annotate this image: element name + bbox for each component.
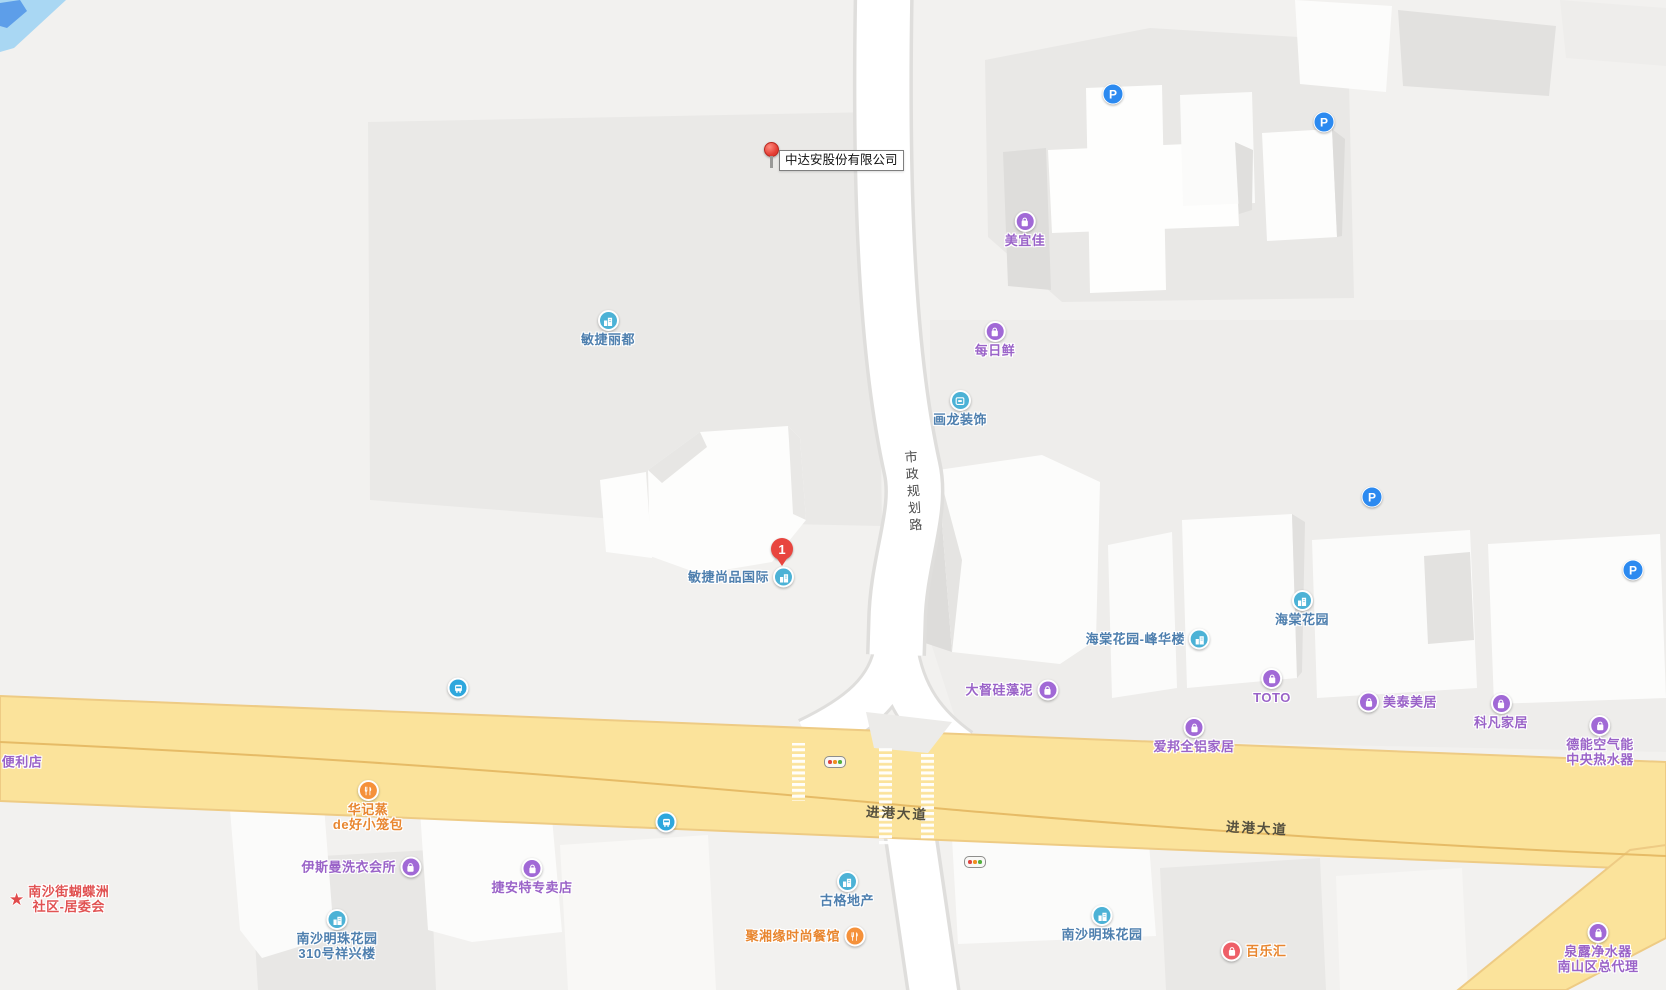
poi-kefan-jiaju[interactable]: 科凡家居 xyxy=(1474,693,1528,730)
bag-icon xyxy=(1490,693,1511,714)
sign-icon xyxy=(949,390,970,411)
bag-icon xyxy=(1183,717,1204,738)
building-icon xyxy=(326,909,347,930)
poi-label: 美泰美居 xyxy=(1383,695,1437,710)
poi-labels: 华记蒸de好小笼包 xyxy=(333,802,403,832)
parking-icon[interactable]: P xyxy=(1314,112,1335,133)
poi-labels: 画龙装饰 xyxy=(933,412,987,427)
building-icon xyxy=(836,871,857,892)
poi-labels: 泉露净水器南山区总代理 xyxy=(1557,944,1638,974)
bag-icon xyxy=(1589,715,1610,736)
poi-label: 南沙街蝴蝶洲 xyxy=(28,884,109,899)
poi-guge-dichan[interactable]: 古格地产 xyxy=(820,871,874,908)
traffic-light-icon xyxy=(824,756,846,768)
poi-juxiangyuan[interactable]: 聚湘缘时尚餐馆 xyxy=(745,926,865,947)
poi-labels: 南沙街蝴蝶洲社区-居委会 xyxy=(28,884,109,914)
poi-label: 南沙明珠花园 xyxy=(296,931,377,946)
poi-label: 南沙明珠花园 xyxy=(1061,927,1142,942)
bag-icon xyxy=(1587,922,1608,943)
bus-stop-icon[interactable] xyxy=(656,812,677,833)
poi-hualong-zhuangshi[interactable]: 画龙装饰 xyxy=(933,390,987,427)
parking-icon[interactable]: P xyxy=(1103,84,1124,105)
poi-labels: 便利店 xyxy=(2,755,43,770)
poi-labels: 捷安特专卖店 xyxy=(491,880,572,895)
pin-icon xyxy=(764,142,779,157)
poi-label: 大督硅藻泥 xyxy=(965,683,1033,698)
bus-stop-icon[interactable] xyxy=(448,678,469,699)
poi-labels: 海棠花园 xyxy=(1275,612,1329,627)
poi-labels: 科凡家居 xyxy=(1474,715,1528,730)
poi-labels: 百乐汇 xyxy=(1246,944,1287,959)
poi-labels: 美泰美居 xyxy=(1383,695,1437,710)
poi-label: 美宜佳 xyxy=(1005,233,1046,248)
traffic-light-icon xyxy=(964,856,986,868)
poi-label: 聚湘缘时尚餐馆 xyxy=(745,929,840,944)
road-label-shizheng-guihua-rd: 市政规划路 xyxy=(900,449,925,535)
poi-label: TOTO xyxy=(1253,690,1291,705)
poi-labels: 伊斯曼洗衣会所 xyxy=(301,860,396,875)
bag-icon xyxy=(1037,680,1058,701)
parking-icon[interactable]: P xyxy=(1623,560,1644,581)
poi-label: 华记蒸 xyxy=(348,802,389,817)
poi-yisiman-laundry[interactable]: 伊斯曼洗衣会所 xyxy=(301,857,421,878)
bag-icon xyxy=(400,857,421,878)
poi-quanlu-water[interactable]: 泉露净水器南山区总代理 xyxy=(1557,922,1638,974)
poi-labels: 古格地产 xyxy=(820,893,874,908)
poi-label: 敏捷尚品国际 xyxy=(688,570,769,585)
map-viewport[interactable]: 敏捷丽都美宜佳每日鲜画龙装饰敏捷尚品国际海棠花园-峰华楼海棠花园大督硅藻泥TOT… xyxy=(0,0,1666,990)
pin-stick xyxy=(770,156,773,168)
poi-meitai-meiju[interactable]: 美泰美居 xyxy=(1358,692,1437,713)
poi-label: 社区-居委会 xyxy=(33,899,105,914)
poi-toto[interactable]: TOTO xyxy=(1253,668,1291,705)
road-label-jingang-ave-west: 进港大道 xyxy=(866,800,929,823)
building-icon xyxy=(1189,629,1210,650)
poi-meirixian[interactable]: 每日鲜 xyxy=(975,321,1016,358)
poi-minjie-lidu[interactable]: 敏捷丽都 xyxy=(581,310,635,347)
building-icon xyxy=(597,310,618,331)
poi-labels: 敏捷丽都 xyxy=(581,332,635,347)
poi-jieante[interactable]: 捷安特专卖店 xyxy=(491,858,572,895)
poi-deneng[interactable]: 德能空气能中央热水器 xyxy=(1566,715,1634,767)
numbered-marker[interactable]: 1 xyxy=(771,538,793,560)
bag-icon xyxy=(1014,211,1035,232)
bag-icon xyxy=(1261,668,1282,689)
poi-layer: 敏捷丽都美宜佳每日鲜画龙装饰敏捷尚品国际海棠花园-峰华楼海棠花园大督硅藻泥TOT… xyxy=(0,0,1666,990)
poi-label: 捷安特专卖店 xyxy=(491,880,572,895)
poi-nansha-mingzhu[interactable]: 南沙明珠花园 xyxy=(1061,905,1142,942)
poi-labels: TOTO xyxy=(1253,690,1291,705)
poi-label: 每日鲜 xyxy=(975,343,1016,358)
poi-label: 南山区总代理 xyxy=(1557,959,1638,974)
bag-icon xyxy=(1221,941,1242,962)
poi-label: 310号祥兴楼 xyxy=(298,946,375,961)
poi-labels: 爱邦全铝家居 xyxy=(1153,739,1234,754)
poi-label: 海棠花园 xyxy=(1275,612,1329,627)
poi-dadu-guizaoni[interactable]: 大督硅藻泥 xyxy=(965,680,1058,701)
food-icon xyxy=(357,780,378,801)
poi-label: 科凡家居 xyxy=(1474,715,1528,730)
poi-meiyijia[interactable]: 美宜佳 xyxy=(1005,211,1046,248)
road-label-jingang-ave-east: 进港大道 xyxy=(1226,815,1289,838)
food-icon xyxy=(844,926,865,947)
poi-labels: 美宜佳 xyxy=(1005,233,1046,248)
poi-labels: 德能空气能中央热水器 xyxy=(1566,737,1634,767)
poi-labels: 南沙明珠花园 xyxy=(1061,927,1142,942)
poi-label: 画龙装饰 xyxy=(933,412,987,427)
poi-label: 伊斯曼洗衣会所 xyxy=(301,860,396,875)
poi-labels: 敏捷尚品国际 xyxy=(688,570,769,585)
building-icon xyxy=(773,567,794,588)
poi-label: de好小笼包 xyxy=(333,817,403,832)
poi-label: 爱邦全铝家居 xyxy=(1153,739,1234,754)
bag-icon xyxy=(1358,692,1379,713)
poi-nansha-mingzhu-310[interactable]: 南沙明珠花园310号祥兴楼 xyxy=(296,909,377,961)
poi-label: 泉露净水器 xyxy=(1564,944,1632,959)
poi-label: 德能空气能 xyxy=(1566,737,1634,752)
poi-labels: 大督硅藻泥 xyxy=(965,683,1033,698)
poi-label: 百乐汇 xyxy=(1246,944,1287,959)
star-icon: ★ xyxy=(9,891,24,908)
company-pin[interactable] xyxy=(764,142,779,168)
poi-aibang[interactable]: 爱邦全铝家居 xyxy=(1153,717,1234,754)
poi-labels: 海棠花园-峰华楼 xyxy=(1086,632,1185,647)
bag-icon xyxy=(521,858,542,879)
building-icon xyxy=(1291,590,1312,611)
poi-nansha-community[interactable]: ★南沙街蝴蝶洲社区-居委会 xyxy=(9,884,109,914)
poi-label: 敏捷丽都 xyxy=(581,332,635,347)
poi-bailehui[interactable]: 百乐汇 xyxy=(1221,941,1287,962)
poi-haitang-fenghualou[interactable]: 海棠花园-峰华楼 xyxy=(1086,629,1210,650)
poi-labels: 南沙明珠花园310号祥兴楼 xyxy=(296,931,377,961)
poi-labels: 聚湘缘时尚餐馆 xyxy=(745,929,840,944)
poi-huajizheng[interactable]: 华记蒸de好小笼包 xyxy=(333,780,403,832)
building-icon xyxy=(1091,905,1112,926)
poi-label: 便利店 xyxy=(2,755,43,770)
parking-icon[interactable]: P xyxy=(1362,487,1383,508)
poi-label: 中央热水器 xyxy=(1566,752,1634,767)
marker-number: 1 xyxy=(778,542,785,557)
poi-haitang-huayuan[interactable]: 海棠花园 xyxy=(1275,590,1329,627)
bag-icon xyxy=(984,321,1005,342)
poi-label: 海棠花园-峰华楼 xyxy=(1086,632,1185,647)
poi-label: 古格地产 xyxy=(820,893,874,908)
poi-minjie-shangpin-intl[interactable]: 敏捷尚品国际 xyxy=(688,567,794,588)
company-pin-label[interactable]: 中达安股份有限公司 xyxy=(779,150,904,171)
poi-labels: 每日鲜 xyxy=(975,343,1016,358)
poi-bianlidian[interactable]: 便利店 xyxy=(2,755,43,770)
